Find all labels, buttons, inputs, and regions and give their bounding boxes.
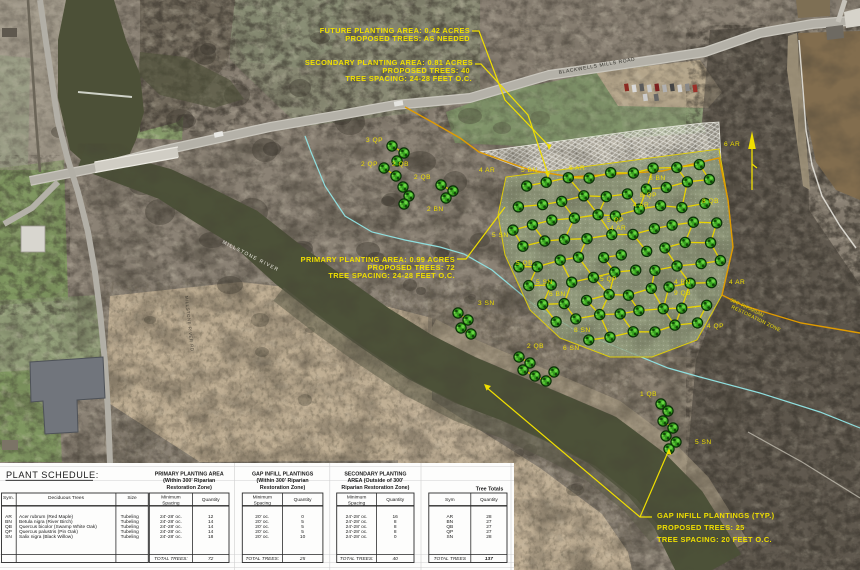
svg-text:GAP INFILL PLANTINGS: GAP INFILL PLANTINGS <box>252 471 314 477</box>
svg-text:137: 137 <box>485 556 493 562</box>
svg-text:Sym: Sym <box>445 497 455 503</box>
svg-text:TOTAL TREES:: TOTAL TREES: <box>154 556 188 562</box>
svg-text:8 BN: 8 BN <box>649 175 666 182</box>
svg-text:GAP INFILL PLANTINGS (TYP.): GAP INFILL PLANTINGS (TYP.) <box>657 511 775 520</box>
svg-text:Quantity: Quantity <box>480 497 498 503</box>
svg-text:Riparian Restoration Zone): Riparian Restoration Zone) <box>341 485 409 491</box>
svg-text:6 AR: 6 AR <box>569 165 585 172</box>
svg-text:TREE SPACING: 20 FEET O.C.: TREE SPACING: 20 FEET O.C. <box>657 535 772 544</box>
svg-text:Restoration Zone): Restoration Zone) <box>167 485 213 491</box>
svg-text:2 QB: 2 QB <box>414 174 431 181</box>
svg-text:24'-28' oc.: 24'-28' oc. <box>160 534 182 540</box>
svg-text:Tree Totals: Tree Totals <box>476 487 504 493</box>
svg-text:TOTAL TREES: TOTAL TREES <box>434 556 467 562</box>
svg-text:6 AR: 6 AR <box>724 141 740 148</box>
svg-text:2 BN: 2 BN <box>427 206 444 213</box>
svg-text:5 QP: 5 QP <box>607 217 624 224</box>
svg-text:10: 10 <box>300 534 306 540</box>
svg-text:Deciduous Trees: Deciduous Trees <box>48 495 85 501</box>
svg-text:18: 18 <box>208 534 214 540</box>
svg-text:4 AR: 4 AR <box>610 225 626 232</box>
svg-text:Spacing: Spacing <box>254 500 272 506</box>
svg-text:Quantity: Quantity <box>386 497 404 503</box>
svg-text:AREA (Outside of 300': AREA (Outside of 300' <box>347 478 403 484</box>
svg-text:9 QB: 9 QB <box>674 290 691 297</box>
svg-text:3 QP: 3 QP <box>366 137 383 144</box>
svg-text:2 QP: 2 QP <box>361 161 378 168</box>
svg-text:20' oc.: 20' oc. <box>255 534 269 540</box>
svg-text:Spacing: Spacing <box>348 500 366 506</box>
svg-text:4 AR: 4 AR <box>479 167 495 174</box>
svg-text:Sym.: Sym. <box>3 495 14 501</box>
svg-text:5 SN: 5 SN <box>695 439 712 446</box>
svg-text:Quantity: Quantity <box>202 497 220 503</box>
svg-text:25: 25 <box>299 556 306 562</box>
svg-text:6 BN: 6 BN <box>549 291 566 298</box>
svg-text:5 QB: 5 QB <box>516 260 533 267</box>
svg-text:SN: SN <box>446 534 453 540</box>
svg-text:PROPOSED TREES: AS NEEDED: PROPOSED TREES: AS NEEDED <box>345 34 470 43</box>
svg-text:4 AR: 4 AR <box>633 202 649 209</box>
svg-text:Spacing: Spacing <box>162 500 180 506</box>
svg-text:2 QB: 2 QB <box>527 343 544 350</box>
svg-text:0: 0 <box>394 534 397 540</box>
svg-text:5 SN: 5 SN <box>536 279 553 286</box>
svg-text:5 BN: 5 BN <box>521 167 538 174</box>
svg-text:Minimum: Minimum <box>253 495 272 501</box>
svg-text:24'-28' oc.: 24'-28' oc. <box>346 534 368 540</box>
svg-text:8 QB: 8 QB <box>702 198 719 205</box>
svg-text:Size: Size <box>127 495 137 501</box>
svg-text:4 AR: 4 AR <box>729 279 745 286</box>
svg-text:Salix nigra (Black Willow): Salix nigra (Black Willow) <box>19 534 73 540</box>
svg-text:SECONDARY PLANTING: SECONDARY PLANTING <box>344 471 406 477</box>
svg-text:1 QB: 1 QB <box>640 391 657 398</box>
svg-text:8 QP: 8 QP <box>640 192 657 199</box>
svg-text:40: 40 <box>393 556 399 562</box>
svg-text:8 SN: 8 SN <box>574 327 591 334</box>
svg-text:72: 72 <box>208 556 214 562</box>
svg-text:TOTAL TREES:: TOTAL TREES: <box>340 556 374 562</box>
svg-text:(Within 300' Riparian: (Within 300' Riparian <box>257 478 309 484</box>
svg-text:4 BN: 4 BN <box>674 279 691 286</box>
svg-text:5 QP: 5 QP <box>600 276 617 283</box>
svg-text:PLANT SCHEDULE:: PLANT SCHEDULE: <box>6 470 99 480</box>
svg-text:3 SN: 3 SN <box>478 300 495 307</box>
svg-text:5 SN: 5 SN <box>492 232 509 239</box>
svg-text:Restoration Zone): Restoration Zone) <box>260 485 306 491</box>
svg-text:Minimum: Minimum <box>347 495 366 501</box>
svg-text:Quantity: Quantity <box>294 497 312 503</box>
svg-text:28: 28 <box>486 534 492 540</box>
svg-text:Tubeling: Tubeling <box>121 534 140 540</box>
svg-text:Minimum: Minimum <box>161 495 180 501</box>
svg-text:(Within 300' Riparian: (Within 300' Riparian <box>163 478 215 484</box>
svg-text:4 QP: 4 QP <box>707 323 724 330</box>
svg-text:SN: SN <box>5 534 12 540</box>
svg-text:PRIMARY PLANTING AREA: PRIMARY PLANTING AREA <box>155 471 224 477</box>
svg-text:2 QB: 2 QB <box>392 161 409 168</box>
svg-text:TREE SPACING: 24-28 FEET O.C.: TREE SPACING: 24-28 FEET O.C. <box>328 271 455 280</box>
svg-text:PROPOSED TREES: 25: PROPOSED TREES: 25 <box>657 523 745 532</box>
svg-text:TREE SPACING: 24-28 FEET O.C.: TREE SPACING: 24-28 FEET O.C. <box>345 74 472 83</box>
svg-text:6 SN: 6 SN <box>563 345 580 352</box>
svg-text:TOTAL TREES:: TOTAL TREES: <box>246 556 280 562</box>
